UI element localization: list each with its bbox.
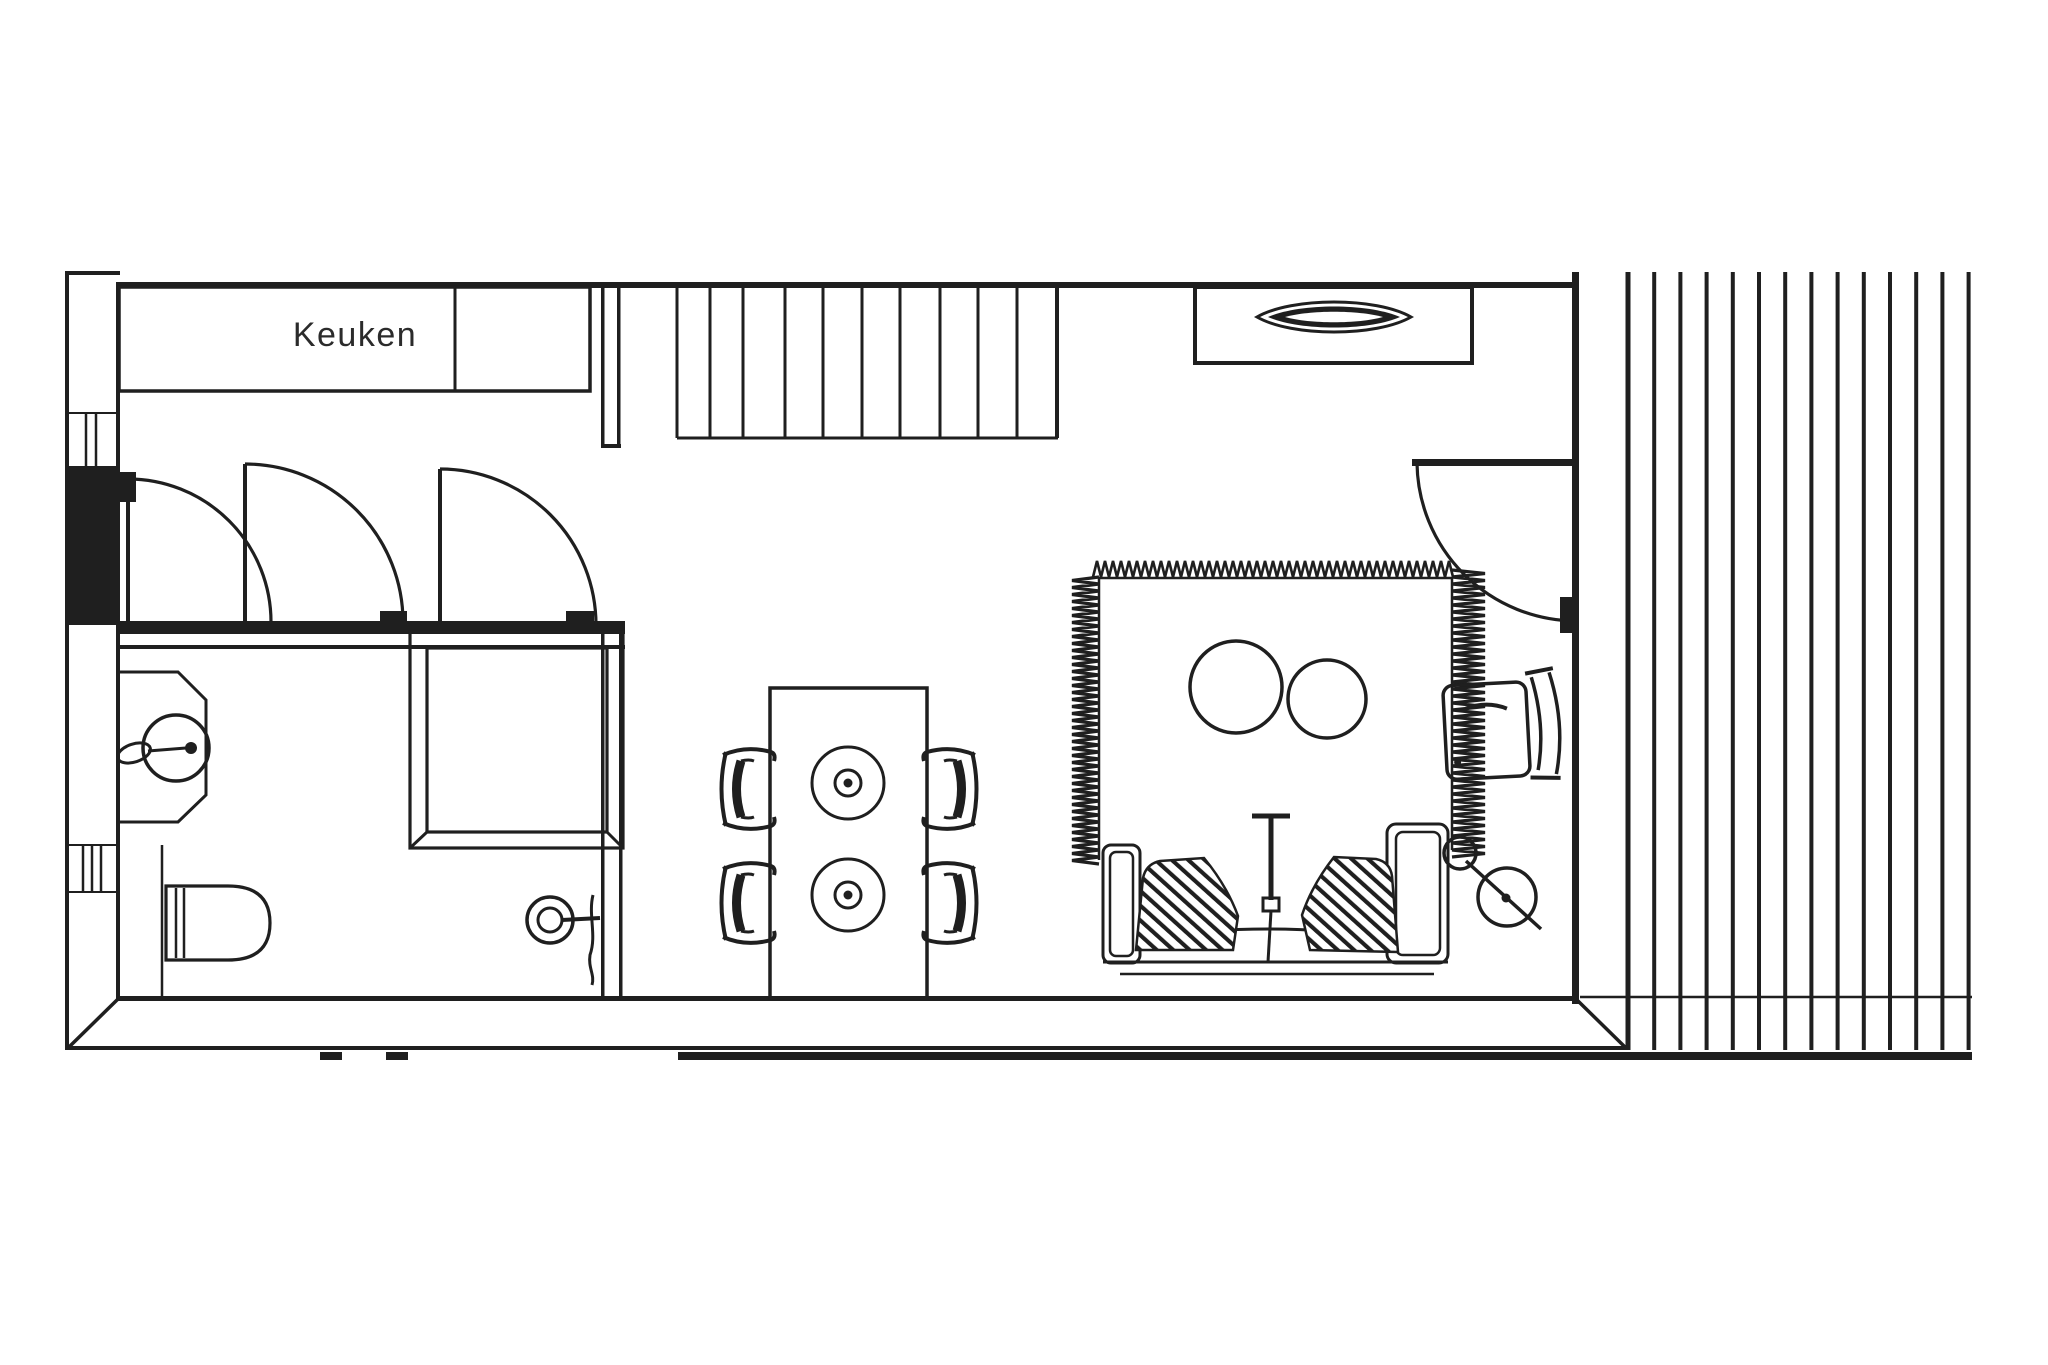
staircase [677, 288, 1058, 438]
decor-bowl-icon [1257, 302, 1411, 332]
rug [1072, 561, 1485, 864]
washbasin [115, 672, 209, 822]
dining-chairs [722, 749, 977, 943]
dining-table [770, 688, 927, 998]
arc-lamp-icon [1252, 816, 1290, 962]
floor-plan: Keuken [0, 0, 2048, 1365]
door-handle-icon [527, 895, 600, 985]
shower-enclosure [410, 632, 623, 848]
coffee-tables [1190, 641, 1366, 738]
entrance-door [1412, 459, 1577, 633]
faucet-icon [115, 739, 186, 767]
sofa [1103, 816, 1448, 974]
interior-walls [162, 288, 623, 1000]
interior-doors [118, 464, 596, 625]
hallway-wall [118, 621, 625, 649]
kitchen-label: Keuken [270, 316, 440, 355]
decking-boards [1580, 272, 1972, 1050]
sofa-cushion [1136, 858, 1238, 950]
floor-plan-drawing [0, 0, 2048, 1365]
toilet [166, 886, 270, 960]
centerpiece [812, 859, 884, 931]
sofa-cushion [1302, 857, 1398, 952]
centerpiece [812, 747, 884, 819]
